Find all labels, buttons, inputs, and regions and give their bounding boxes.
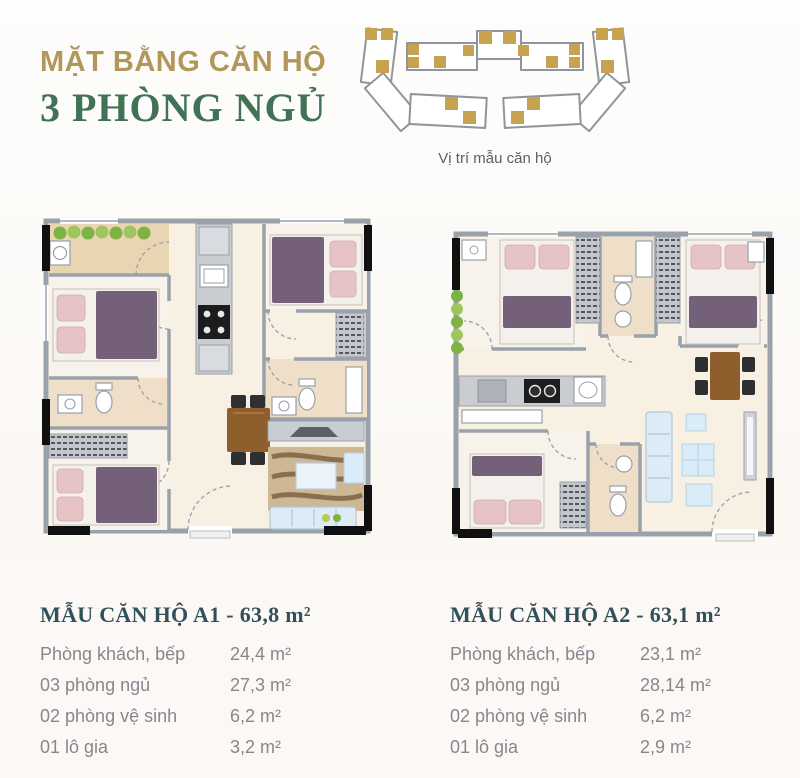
spec-row: Phòng khách, bếp 23,1 m² [450, 644, 790, 665]
spec-row: 02 phòng vệ sinh 6,2 m² [40, 706, 380, 727]
sofa-icon [270, 507, 356, 529]
page-title-line1: MẶT BẰNG CĂN HỘ [40, 46, 327, 79]
spec-row: 03 phòng ngủ 28,14 m² [450, 675, 790, 696]
sink-icon [58, 395, 82, 413]
spec-row-label: 03 phòng ngủ [450, 675, 640, 696]
spec-row-value: 2,9 m² [640, 737, 691, 758]
spec-title-a2: MẪU CĂN HỘ A2 - 63,1 m² [450, 602, 790, 628]
locator-caption: Vị trí mẫu căn hộ [350, 150, 640, 167]
stove-icon [198, 305, 230, 339]
sink-icon [615, 311, 631, 327]
bed-icon [53, 289, 159, 361]
sink-icon [616, 456, 632, 472]
page-title: MẶT BẰNG CĂN HỘ 3 PHÒNG NGỦ [40, 46, 327, 131]
floorplan-a1 [38, 213, 376, 550]
spec-row-label: 01 lô gia [450, 737, 640, 758]
spec-table-a2: MẪU CĂN HỘ A2 - 63,1 m² Phòng khách, bếp… [450, 602, 790, 768]
bed-icon [270, 235, 362, 305]
kitchen-counter [196, 224, 232, 374]
sink-counter-icon [636, 241, 652, 277]
toilet-icon [299, 379, 315, 410]
entry-step [716, 534, 754, 541]
building-locator-map [350, 20, 640, 142]
floorplan-a1-drawing [38, 213, 376, 545]
fridge-icon [478, 380, 506, 402]
building-outline [361, 28, 629, 131]
spec-row-label: 02 phòng vệ sinh [450, 706, 640, 727]
spec-table-a1: MẪU CĂN HỘ A1 - 63,8 m² Phòng khách, bếp… [40, 602, 380, 768]
spec-row: 01 lô gia 2,9 m² [450, 737, 790, 758]
spec-row-value: 27,3 m² [230, 675, 291, 696]
nightstand-icon [462, 240, 486, 260]
spec-row: 03 phòng ngủ 27,3 m² [40, 675, 380, 696]
toilet-icon [96, 383, 112, 413]
building-locator: Vị trí mẫu căn hộ [350, 20, 640, 167]
page-title-line2: 3 PHÒNG NGỦ [40, 84, 327, 131]
spec-row-label: 03 phòng ngủ [40, 675, 230, 696]
side-table-icon [344, 453, 364, 483]
toilet-icon [610, 486, 626, 516]
toilet-icon [614, 276, 632, 305]
nightstand-icon [748, 242, 764, 262]
spec-title-a1: MẪU CĂN HỘ A1 - 63,8 m² [40, 602, 380, 628]
stove-icon [524, 379, 560, 403]
spec-row-value: 28,14 m² [640, 675, 711, 696]
spec-row-value: 23,1 m² [640, 644, 701, 665]
spec-row-value: 24,4 m² [230, 644, 291, 665]
washer-icon [50, 241, 70, 265]
spec-row-label: 01 lô gia [40, 737, 230, 758]
spec-row-value: 3,2 m² [230, 737, 281, 758]
bathtub-icon [346, 367, 362, 413]
wardrobe-icon [576, 237, 600, 323]
wardrobe-icon [49, 434, 127, 458]
wardrobe-icon [656, 237, 680, 323]
entry-step [190, 531, 230, 538]
bed-icon [53, 465, 159, 525]
spec-row-value: 6,2 m² [640, 706, 691, 727]
wardrobe-icon [560, 482, 586, 528]
spec-row: 01 lô gia 3,2 m² [40, 737, 380, 758]
kitchen-sink-icon [574, 377, 602, 403]
counter-shelf [462, 410, 542, 423]
spec-row-value: 6,2 m² [230, 706, 281, 727]
wardrobe-icon [336, 313, 364, 357]
coffee-table-icon [296, 463, 336, 489]
spec-row-label: Phòng khách, bếp [450, 644, 640, 665]
sink-icon [272, 397, 296, 415]
floorplan-a2 [448, 226, 778, 547]
spec-row: Phòng khách, bếp 24,4 m² [40, 644, 380, 665]
plant-icon [451, 290, 463, 354]
floorplan-a2-drawing [448, 226, 778, 542]
bed-icon [500, 240, 574, 344]
spec-row-label: Phòng khách, bếp [40, 644, 230, 665]
bed-icon [470, 454, 544, 528]
sofa-icon [646, 412, 672, 502]
spec-row: 02 phòng vệ sinh 6,2 m² [450, 706, 790, 727]
spec-row-label: 02 phòng vệ sinh [40, 706, 230, 727]
window-icon [744, 412, 756, 480]
